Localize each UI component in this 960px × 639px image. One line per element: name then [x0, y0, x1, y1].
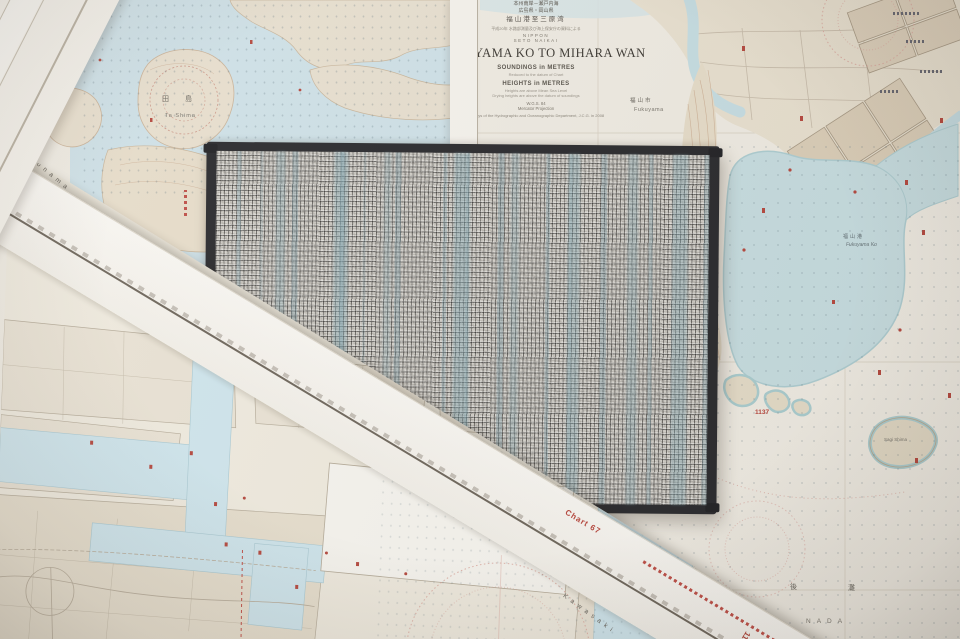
micro-text-block — [906, 40, 926, 43]
nada-label: NADA — [806, 619, 848, 626]
fukuyama-port-jp: 福山港 — [843, 235, 864, 240]
binding-corner — [204, 144, 218, 153]
fukuyama-port-label: Fukuyama Ko — [846, 243, 877, 248]
photo-of-charts-and-woven-artwork: 本州南岸－瀬戸内海 広島県・岡山県 福山港至三原湾 平成20年 水路部測量及び海… — [0, 0, 960, 639]
nada-kanji-right: 灘 — [848, 585, 855, 592]
danger-line — [700, 470, 905, 499]
blue-streak — [508, 153, 519, 503]
red-margin-micro-text — [184, 190, 187, 216]
binding-corner — [709, 148, 723, 157]
chart67-label: Chart 67 — [564, 509, 602, 536]
micro-text-block — [880, 90, 898, 93]
corner-chart-number: 1166 — [735, 630, 751, 639]
bay-water — [724, 151, 908, 386]
ta-shima-kanji: 田 島 — [162, 96, 199, 103]
blue-streak — [565, 154, 580, 504]
blue-streak — [671, 155, 688, 505]
fukuyama-left-margin — [450, 0, 478, 152]
micro-text-block — [893, 12, 919, 15]
fukuyama-city-jp: 福山市 — [630, 99, 653, 105]
sagi-shima-label: Sagi Shima — [884, 438, 907, 443]
binding-corner — [705, 503, 719, 512]
compass-rose-midright — [709, 501, 805, 597]
fukuyama-city-label: Fukuyama — [634, 108, 664, 114]
ta-shima-label: Ta Shima — [165, 114, 196, 120]
micro-text-block — [920, 70, 944, 73]
blue-streak — [625, 154, 638, 504]
nada-kanji-left: 後 — [790, 584, 797, 591]
fukuyama-chart-number: 1137 — [755, 410, 769, 417]
